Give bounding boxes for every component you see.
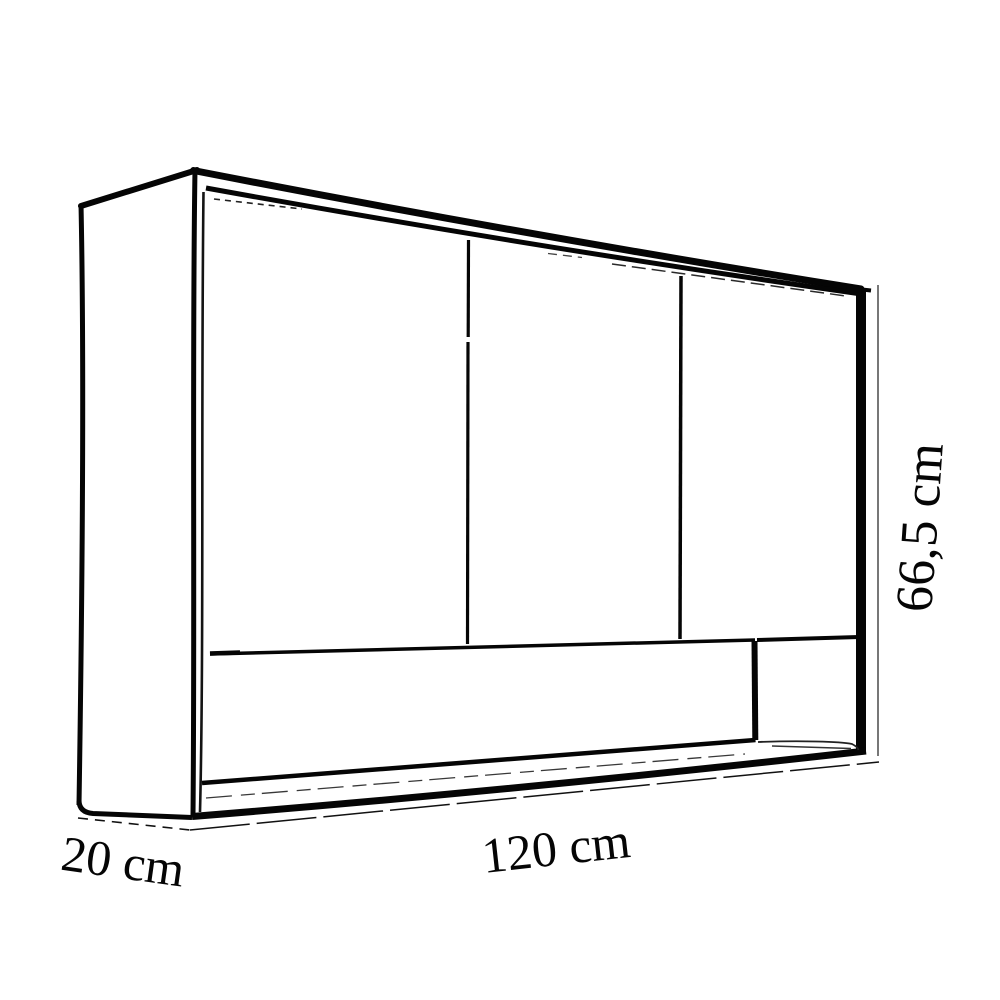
svg-text:120 cm: 120 cm — [479, 812, 633, 884]
svg-text:20 cm: 20 cm — [58, 825, 188, 898]
svg-text:66,5 cm: 66,5 cm — [885, 441, 955, 614]
